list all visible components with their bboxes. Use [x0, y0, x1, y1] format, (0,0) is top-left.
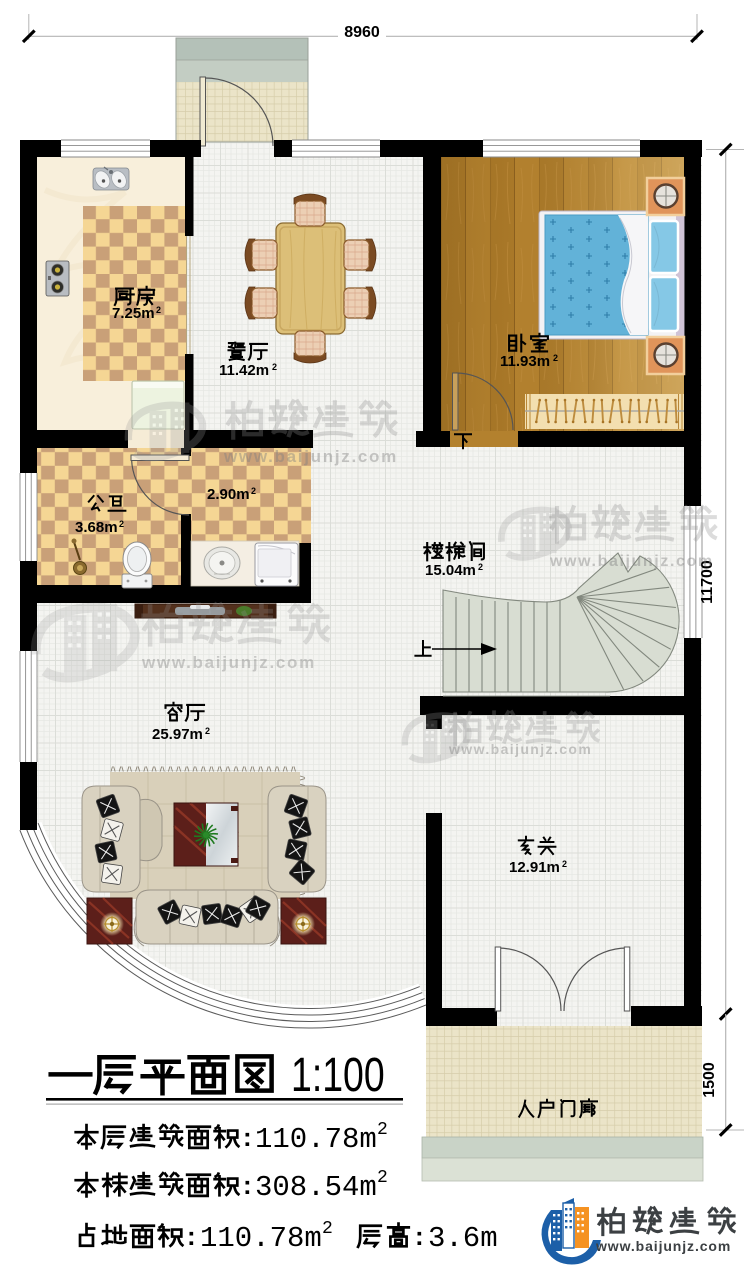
svg-text:308.54m: 308.54m [255, 1171, 377, 1204]
svg-text:11.93m: 11.93m [500, 353, 550, 370]
svg-text:2: 2 [119, 519, 124, 529]
svg-text:7.25m: 7.25m [112, 305, 155, 322]
svg-text:www.baijunjz.com: www.baijunjz.com [223, 447, 398, 466]
svg-text:15.04m: 15.04m [425, 562, 476, 579]
svg-text:110.78m: 110.78m [255, 1123, 377, 1156]
svg-text:www.baijunjz.com: www.baijunjz.com [141, 653, 316, 672]
svg-text:12.91m: 12.91m [509, 859, 560, 876]
svg-text:2: 2 [377, 1120, 388, 1140]
svg-text::: : [187, 1221, 196, 1251]
svg-text:2: 2 [156, 305, 161, 315]
svg-text:1:100: 1:100 [291, 1049, 385, 1103]
svg-text:2: 2 [478, 562, 483, 572]
svg-text:11.42m: 11.42m [219, 362, 269, 379]
svg-text:2: 2 [251, 486, 256, 496]
svg-text::: : [243, 1170, 252, 1200]
svg-text:1500: 1500 [701, 1062, 718, 1098]
svg-text:110.78m: 110.78m [200, 1222, 322, 1255]
svg-text:3.6m: 3.6m [428, 1222, 498, 1255]
svg-text:2.90m: 2.90m [207, 486, 250, 503]
svg-text::: : [243, 1122, 252, 1152]
svg-text:2: 2 [553, 353, 558, 363]
svg-text:2: 2 [562, 859, 567, 869]
svg-text:2: 2 [205, 726, 210, 736]
svg-text:25.97m: 25.97m [152, 726, 203, 743]
svg-text::: : [415, 1221, 424, 1251]
svg-text:8960: 8960 [344, 24, 380, 41]
svg-text:www.baijunjz.com: www.baijunjz.com [448, 741, 592, 757]
svg-text:2: 2 [272, 362, 277, 372]
svg-text:2: 2 [322, 1219, 333, 1239]
svg-text:www.baijunjz.com: www.baijunjz.com [549, 553, 714, 570]
svg-text:www.baijunjz.com: www.baijunjz.com [595, 1238, 731, 1254]
svg-text:3.68m: 3.68m [75, 519, 118, 536]
svg-text:2: 2 [377, 1168, 388, 1188]
